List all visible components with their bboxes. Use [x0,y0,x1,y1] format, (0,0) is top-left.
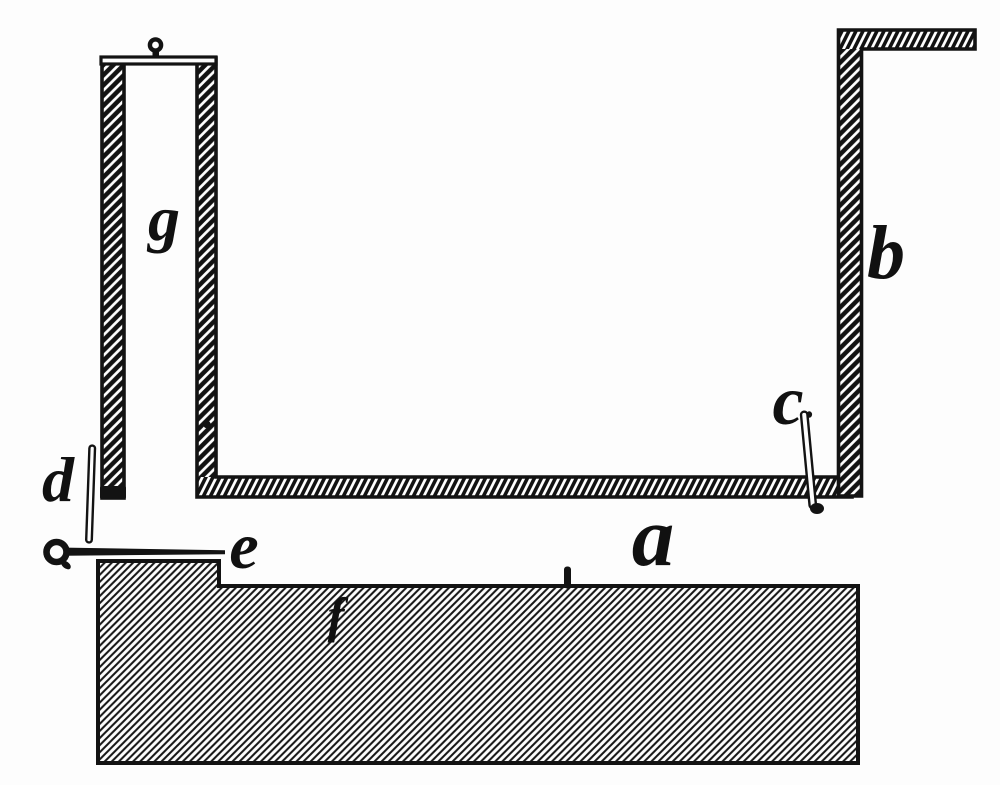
svg-text:b: b [867,211,905,295]
svg-text:d: d [42,444,75,515]
svg-text:a: a [632,490,675,584]
svg-text:g: g [146,183,180,254]
svg-text:e: e [229,510,258,583]
svg-text:c: c [772,363,803,440]
